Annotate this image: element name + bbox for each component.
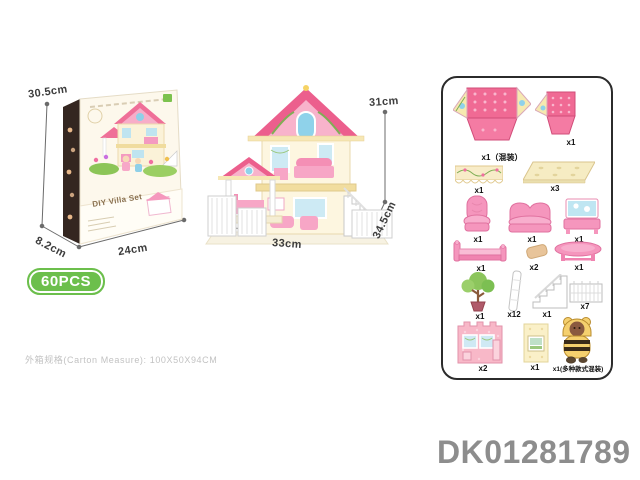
part-tree: x1 — [460, 270, 496, 317]
part-table: x1 — [553, 241, 603, 268]
part-staircase: x1 — [531, 274, 569, 317]
staircase-icon — [531, 274, 569, 312]
awning-panel-icon — [455, 162, 503, 188]
box-width-label: 24cm — [117, 242, 148, 259]
sofa-icon — [507, 200, 554, 235]
part-pillow: x2 — [525, 243, 549, 266]
part-sofa: x1 — [507, 200, 554, 240]
part-bed: x1 — [453, 240, 507, 269]
wall-panel-yellow-icon — [523, 323, 549, 363]
part-fence: x7 — [569, 280, 603, 309]
part-wall-pink: x2 — [457, 320, 503, 369]
roof-panel-unfolded-icon — [453, 84, 531, 144]
part-wall-yellow: x1 — [523, 323, 549, 368]
dimension-lines — [40, 102, 387, 249]
roof-panel-folded-icon — [535, 90, 585, 136]
part-doll: x1(多种款式混装) — [555, 316, 599, 369]
box-depth-label: 8.2cm — [33, 235, 68, 261]
house-width-label: 33cm — [272, 237, 302, 251]
house-height-label: 31cm — [369, 95, 399, 109]
bed-icon — [453, 240, 507, 264]
box-illustration — [63, 90, 182, 244]
tree-icon — [460, 270, 496, 312]
doll-icon — [555, 316, 599, 364]
part-floor: x3 — [523, 160, 595, 189]
parts-panel: x1（混装） x1 x1 — [441, 76, 613, 380]
part-awning: x1 — [455, 162, 503, 193]
box-title: DIY Villa Set — [92, 192, 143, 209]
part-roof-folded: x1 — [535, 90, 585, 141]
product-sheet: 30.5cm 24cm 8.2cm 31cm 33cm 34.5cm 60PCS… — [0, 0, 640, 480]
fence-icon — [569, 280, 603, 304]
vanity-dresser-icon — [562, 198, 602, 235]
carton-measure-note: 外箱规格(Carton Measure): 100X50X94CM — [25, 353, 217, 366]
table-icon — [553, 241, 603, 263]
floor-panel-icon — [523, 160, 595, 184]
part-vanity: x1 — [562, 198, 602, 240]
part-roof-unfolded: x1（混装） — [453, 84, 531, 149]
box-height-label: 30.5cm — [27, 83, 68, 100]
house-depth-label: 34.5cm — [371, 200, 399, 241]
armchair-icon — [462, 195, 492, 235]
pillow-icon — [525, 243, 549, 261]
part-column: x12 — [505, 270, 525, 317]
part-armchair: x1 — [462, 195, 492, 240]
pieces-badge: 60PCS — [27, 268, 105, 295]
product-code: DK01281789 — [437, 434, 631, 471]
house-illustration — [206, 85, 392, 244]
wall-panel-pink-icon — [457, 320, 503, 364]
column-icon — [505, 270, 525, 312]
